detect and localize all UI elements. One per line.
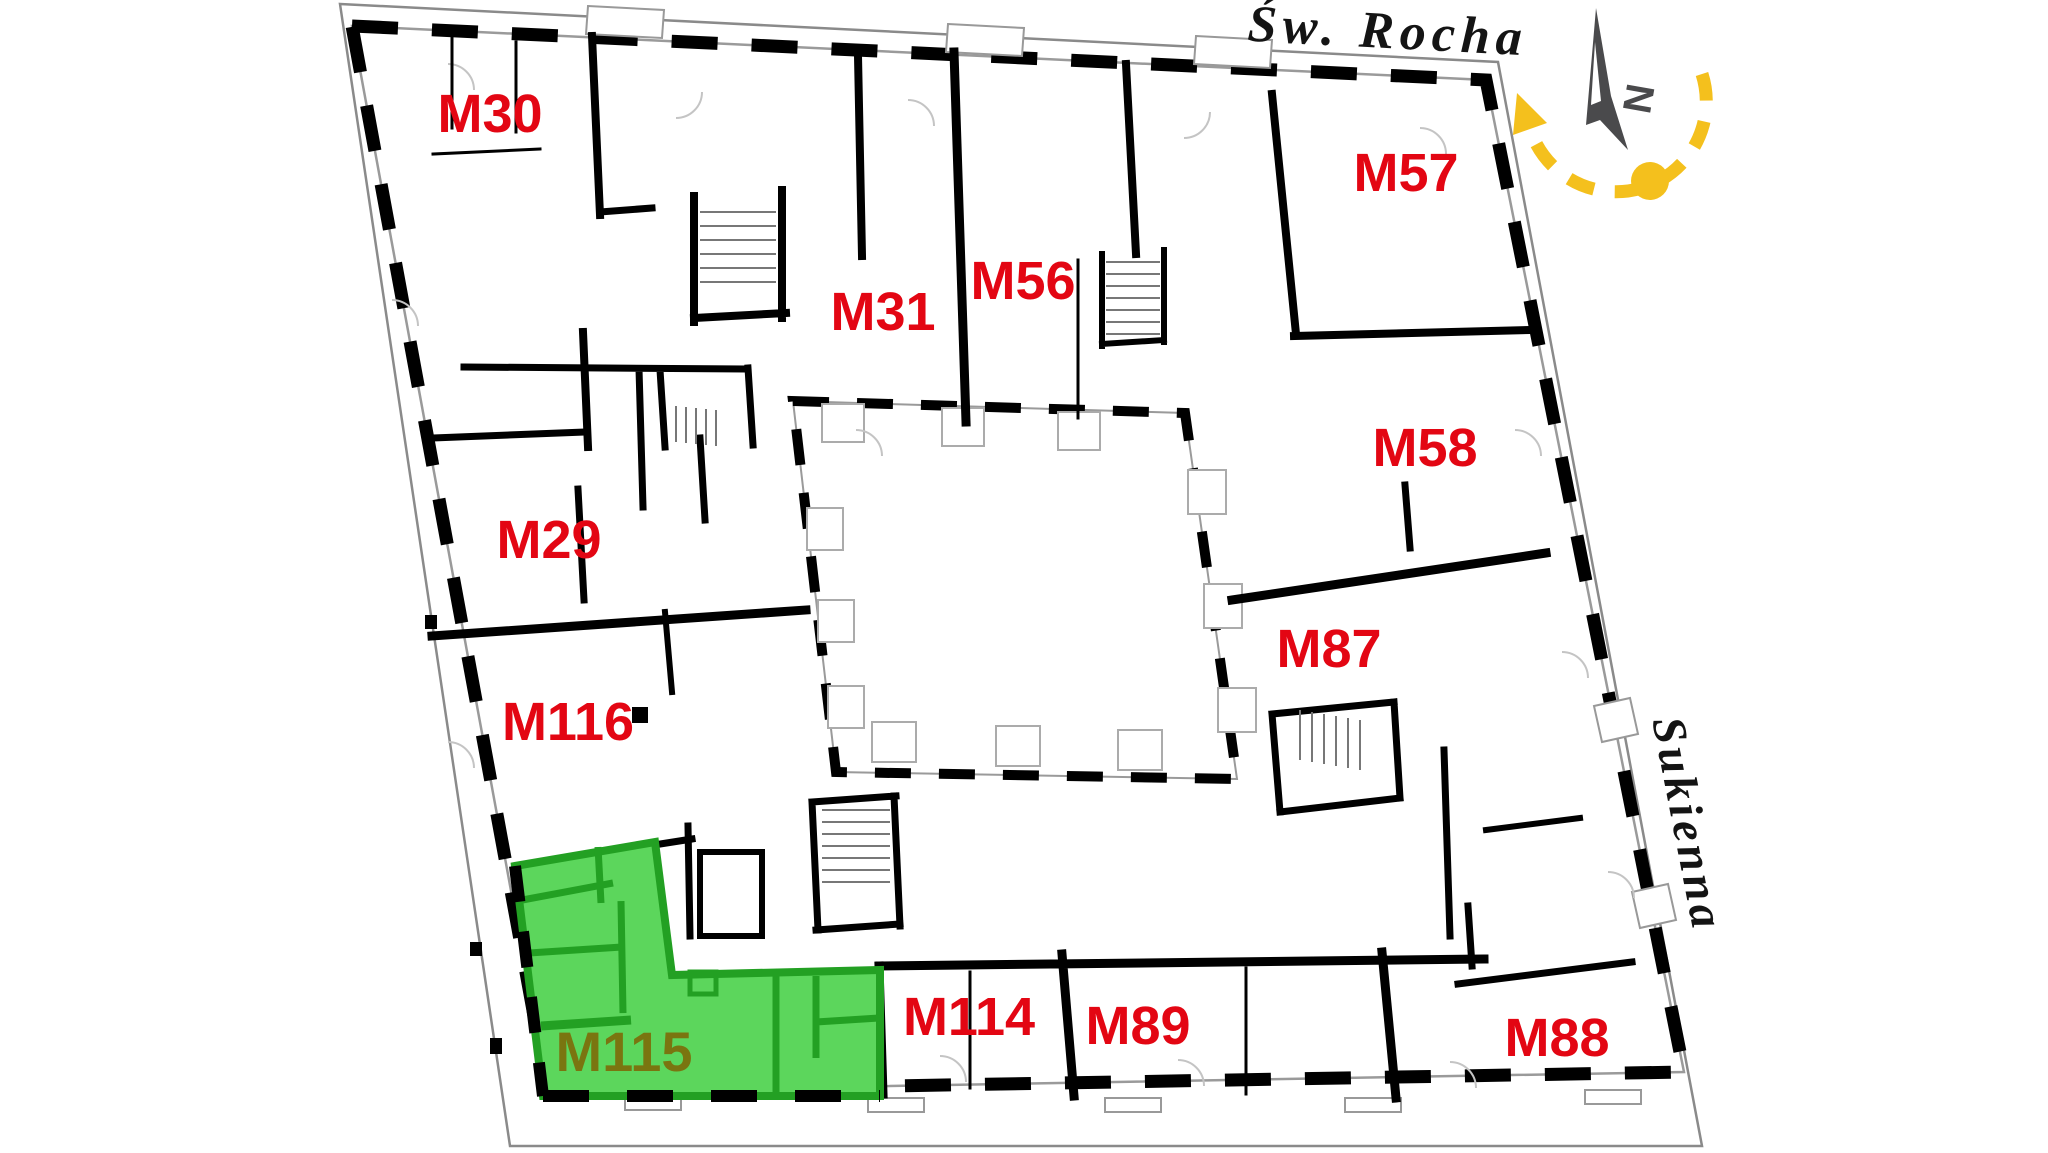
column (632, 707, 648, 723)
courtyard (793, 401, 1256, 779)
floor-plan-canvas: M30 M57 M31 M56 M58 M29 M87 M116 M115 M1… (0, 0, 2048, 1153)
unit-label-m30[interactable]: M30 (437, 84, 542, 144)
elevator-shaft (700, 852, 762, 936)
unit-label-m115[interactable]: M115 (556, 1020, 693, 1083)
unit-label-m56[interactable]: M56 (970, 251, 1075, 311)
floor-plan-page: M30 M57 M31 M56 M58 M29 M87 M116 M115 M1… (0, 0, 2048, 1153)
north-letter: N (1614, 80, 1662, 116)
unit-label-m88[interactable]: M88 (1504, 1008, 1609, 1068)
unit-label-m57[interactable]: M57 (1353, 143, 1458, 203)
north-needle-icon (1586, 8, 1628, 150)
unit-label-m29[interactable]: M29 (496, 510, 601, 570)
sun-path-arrowhead-icon (1513, 93, 1547, 135)
sun-icon (1631, 162, 1669, 200)
unit-label-m58[interactable]: M58 (1372, 418, 1477, 478)
unit-label-m116[interactable]: M116 (502, 692, 634, 752)
north-sun-indicator: N (1513, 8, 1706, 200)
street-label-sw-rocha: Św. Rocha (1246, 0, 1529, 67)
unit-label-m89[interactable]: M89 (1085, 996, 1190, 1056)
unit-label-m87[interactable]: M87 (1276, 619, 1381, 679)
unit-label-m31[interactable]: M31 (830, 282, 935, 342)
unit-label-m114[interactable]: M114 (903, 987, 1035, 1047)
